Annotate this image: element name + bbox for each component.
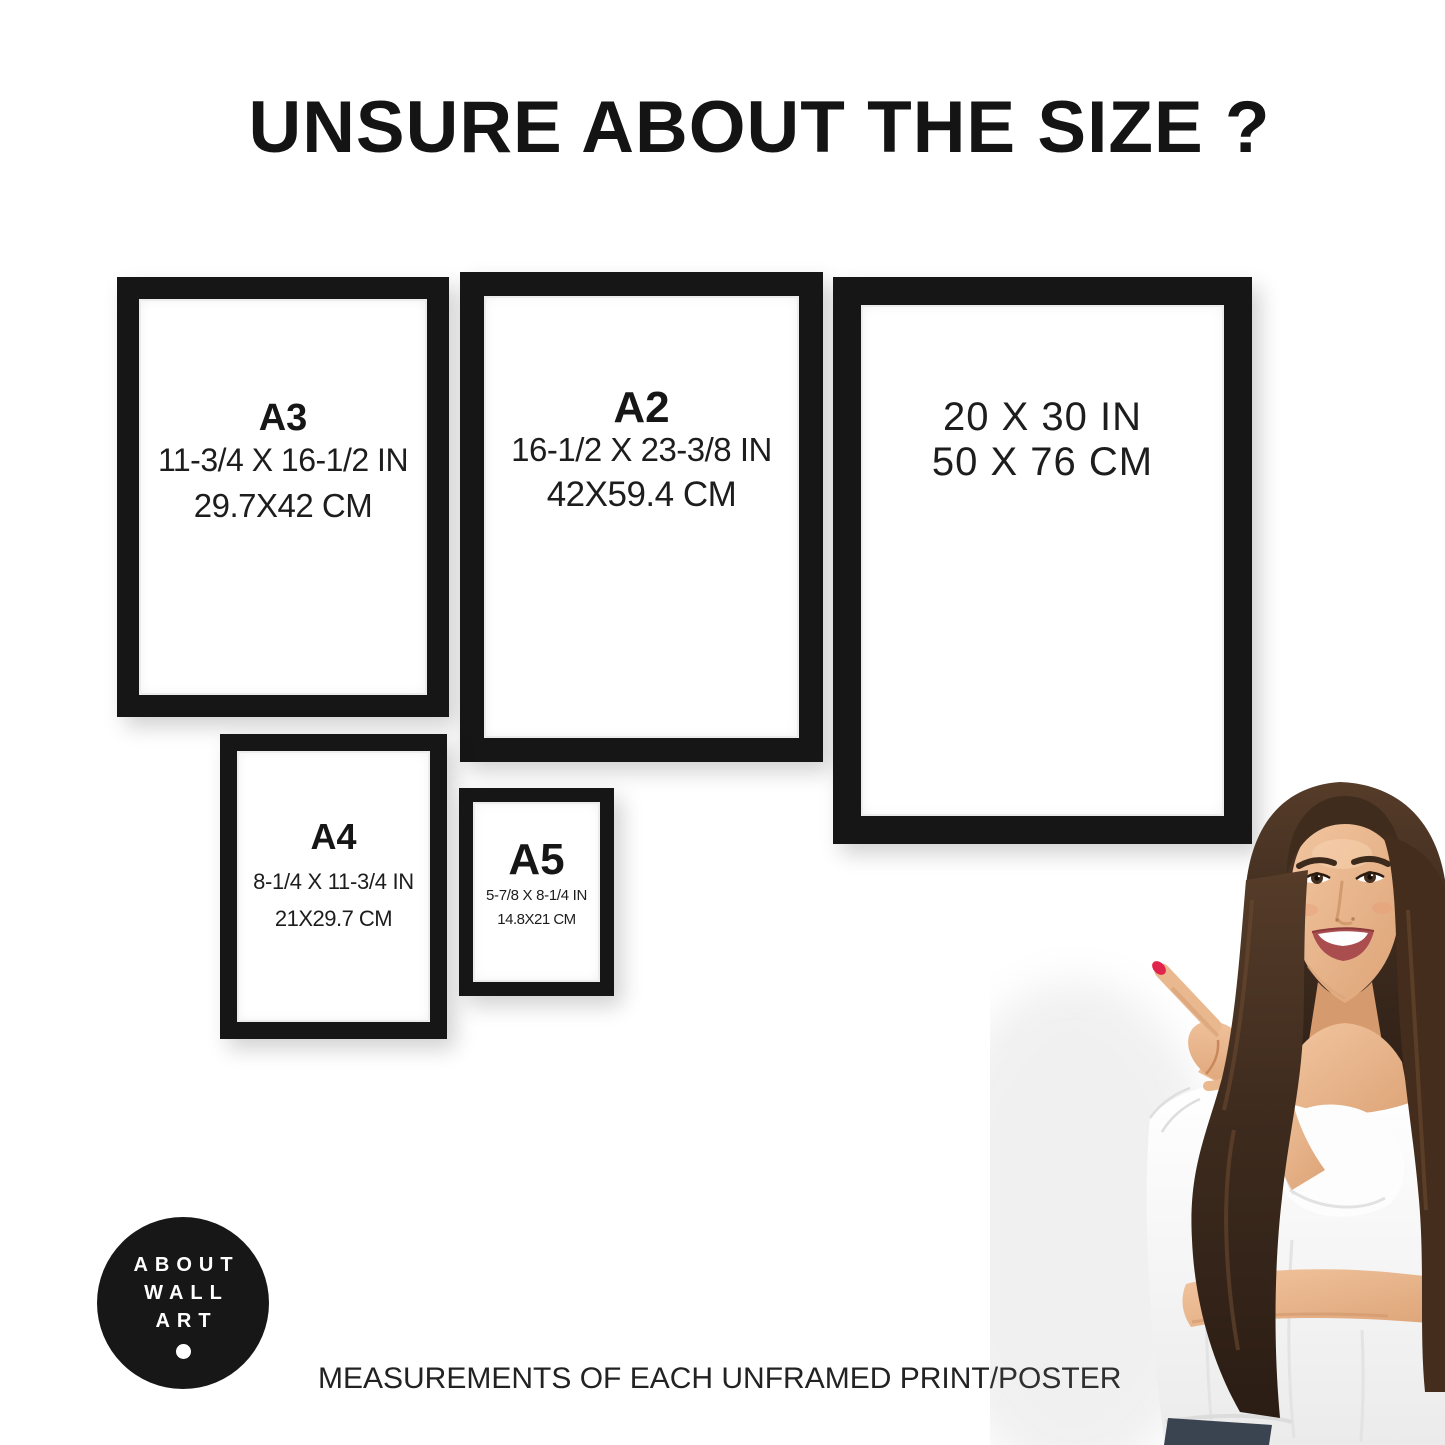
- frame-20x30: 20 X 30 IN 50 X 76 CM: [833, 277, 1252, 844]
- frame-a3-inches: 11-3/4 X 16-1/2 IN: [158, 443, 408, 478]
- frame-a4-cm: 21X29.7 CM: [275, 906, 392, 932]
- frame-a2: A2 16-1/2 X 23-3/8 IN 42X59.4 CM: [460, 272, 823, 762]
- frame-a3: A3 11-3/4 X 16-1/2 IN 29.7X42 CM: [117, 277, 449, 717]
- frame-a4-inches: 8-1/4 X 11-3/4 IN: [253, 869, 414, 895]
- size-guide-poster: UNSURE ABOUT THE SIZE ? A3 11-3/4 X 16-1…: [0, 0, 1445, 1445]
- frame-a2-inches: 16-1/2 X 23-3/8 IN: [511, 432, 772, 468]
- logo-text-about: ABOUT: [126, 1251, 239, 1279]
- logo-text-art: ART: [148, 1307, 217, 1335]
- brand-logo: ABOUT WALL ART: [97, 1217, 269, 1389]
- frame-20x30-inches: 20 X 30 IN: [943, 395, 1142, 440]
- frame-a4: A4 8-1/4 X 11-3/4 IN 21X29.7 CM: [220, 734, 447, 1039]
- frame-20x30-cm: 50 X 76 CM: [932, 440, 1153, 485]
- pointing-finger: [1162, 971, 1214, 1026]
- frame-a2-cm: 42X59.4 CM: [547, 476, 737, 515]
- model-photo: [990, 770, 1445, 1445]
- frame-a5: A5 5-7/8 X 8-1/4 IN 14.8X21 CM: [459, 788, 614, 996]
- frame-a5-cm: 14.8X21 CM: [497, 910, 575, 930]
- logo-dot: [176, 1344, 191, 1359]
- frame-a5-label: A5: [508, 838, 564, 882]
- page-title: UNSURE ABOUT THE SIZE ?: [248, 86, 1270, 169]
- frame-a4-label: A4: [310, 819, 356, 855]
- logo-text-wall: WALL: [137, 1279, 229, 1307]
- frame-a3-cm: 29.7X42 CM: [194, 488, 372, 524]
- frame-a2-label: A2: [613, 386, 669, 430]
- frame-a3-label: A3: [259, 399, 308, 437]
- caption: MEASUREMENTS OF EACH UNFRAMED PRINT/POST…: [318, 1362, 1014, 1396]
- blush-right: [1372, 902, 1392, 914]
- frame-a5-inches: 5-7/8 X 8-1/4 IN: [486, 886, 587, 906]
